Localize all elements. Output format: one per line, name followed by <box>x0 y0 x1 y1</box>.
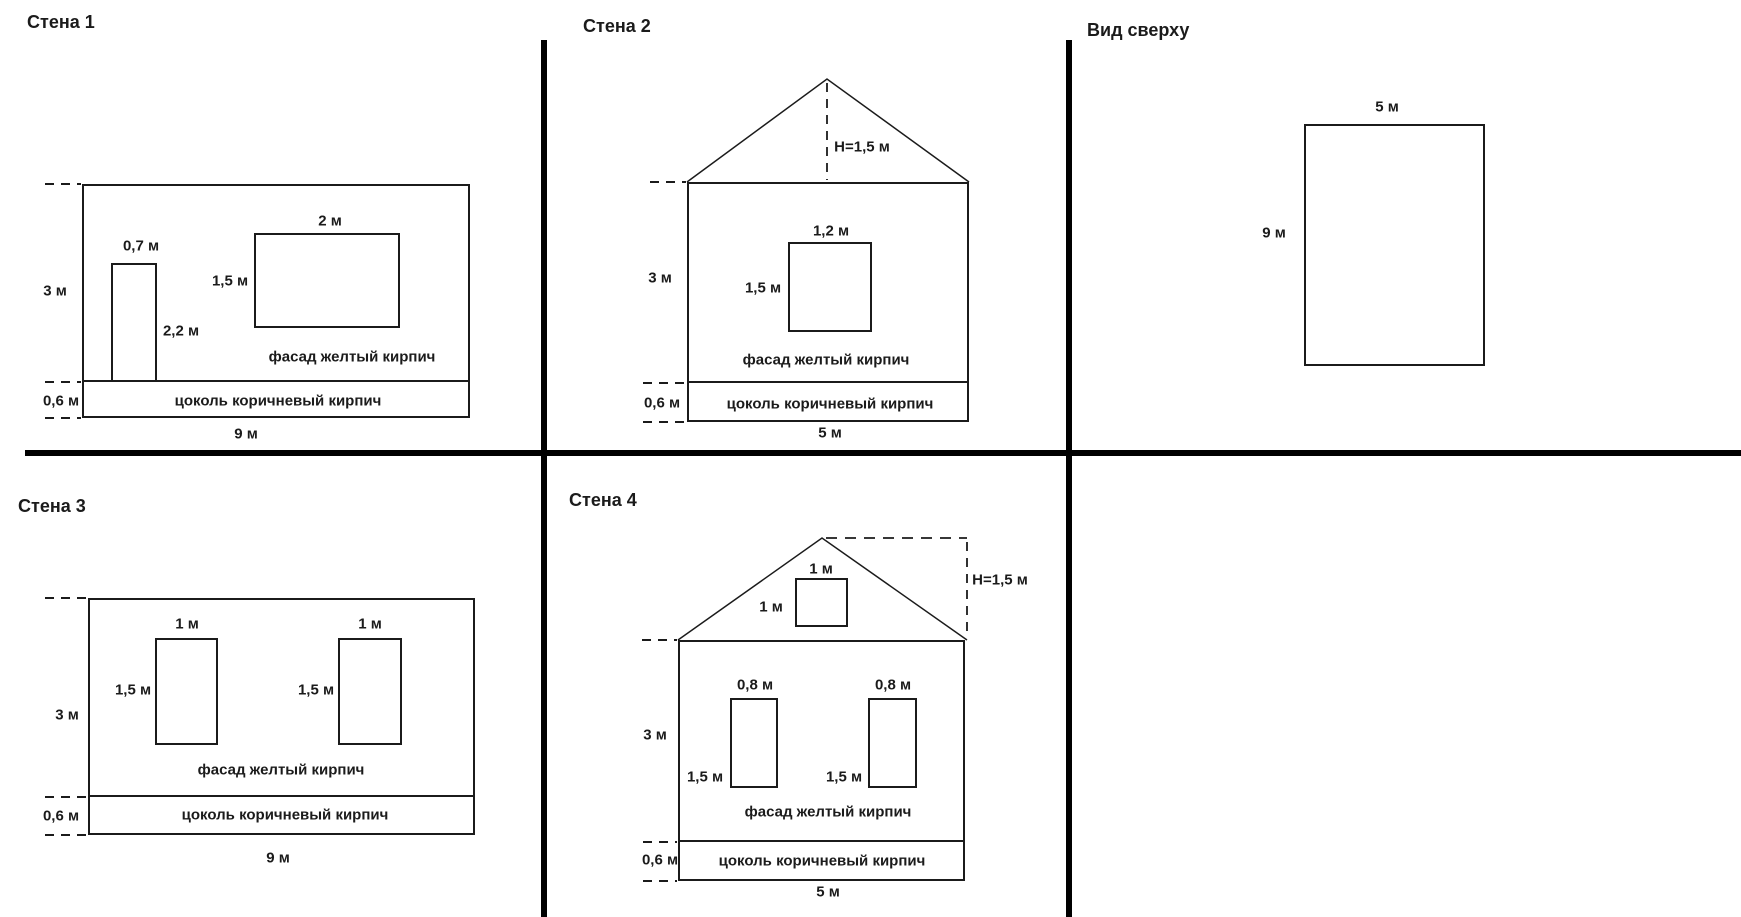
wall1-title: Стена 1 <box>27 12 95 33</box>
wall1-width-label: 9 м <box>234 426 258 443</box>
wall1-window-width-label: 2 м <box>318 213 342 230</box>
wall4-width-label: 5 м <box>816 884 840 901</box>
wall2-window <box>788 242 872 332</box>
wall4-level-dashes <box>642 640 677 881</box>
wall3-height-label: 3 м <box>55 707 79 724</box>
wall1-plinth-height-label: 0,6 м <box>43 393 79 410</box>
wall3-plinth-label: цоколь коричневый кирпич <box>182 807 389 824</box>
top-view-height-label: 9 м <box>1262 225 1286 242</box>
wall3-window2-width-label: 1 м <box>358 616 382 633</box>
wall4-facade-label: фасад желтый кирпич <box>745 804 912 821</box>
wall2-roof-outline <box>687 79 969 182</box>
wall4-gable-window-width-label: 1 м <box>809 561 833 578</box>
wall4-window-1 <box>730 698 778 788</box>
wall4-gable-window <box>795 578 848 627</box>
wall3-title: Стена 3 <box>18 496 86 517</box>
wall1-door <box>111 263 157 382</box>
wall3-window2-height-label: 1,5 м <box>298 682 334 699</box>
wall2-width-label: 5 м <box>818 425 842 442</box>
wall2-roof-height-label: Н=1,5 м <box>834 139 890 156</box>
wall2-plinth-label: цоколь коричневый кирпич <box>727 396 934 413</box>
wall3-plinth-height-label: 0,6 м <box>43 808 79 825</box>
divider-vertical-right <box>1066 40 1072 917</box>
wall1-facade-label: фасад желтый кирпич <box>269 349 436 366</box>
top-view-width-label: 5 м <box>1375 99 1399 116</box>
wall3-window1-height-label: 1,5 м <box>115 682 151 699</box>
wall4-window2-width-label: 0,8 м <box>875 677 911 694</box>
wall2-title: Стена 2 <box>583 16 651 37</box>
wall2-facade-label: фасад желтый кирпич <box>743 352 910 369</box>
wall2-height-label: 3 м <box>648 270 672 287</box>
wall3-window1-width-label: 1 м <box>175 616 199 633</box>
wall1-door-width-label: 0,7 м <box>123 238 159 255</box>
wall2-window-width-label: 1,2 м <box>813 223 849 240</box>
wall2-plinth-height-label: 0,6 м <box>644 395 680 412</box>
wall1-level-dashes <box>45 184 81 418</box>
wall1-window-height-label: 1,5 м <box>212 273 248 290</box>
wall4-height-label: 3 м <box>643 727 667 744</box>
wall4-window2-height-label: 1,5 м <box>826 769 862 786</box>
blueprint-canvas: Стена 1 0,7 м 2,2 м 2 м 1,5 м 3 м фасад … <box>0 0 1741 917</box>
wall4-window-2 <box>868 698 917 788</box>
wall1-height-label: 3 м <box>43 283 67 300</box>
wall3-width-label: 9 м <box>266 850 290 867</box>
top-view-title: Вид сверху <box>1087 20 1189 41</box>
wall4-plinth-height-label: 0,6 м <box>642 852 678 869</box>
wall2-level-dashes <box>643 182 686 422</box>
wall3-window-2 <box>338 638 402 745</box>
top-view-outline <box>1304 124 1485 366</box>
wall4-gable-window-height-label: 1 м <box>759 599 783 616</box>
divider-vertical-left <box>541 40 547 917</box>
wall4-window1-height-label: 1,5 м <box>687 769 723 786</box>
wall3-facade-label: фасад желтый кирпич <box>198 762 365 779</box>
wall3-window-1 <box>155 638 218 745</box>
wall4-window1-width-label: 0,8 м <box>737 677 773 694</box>
wall1-plinth-label: цоколь коричневый кирпич <box>175 393 382 410</box>
wall1-window <box>254 233 400 328</box>
wall4-title: Стена 4 <box>569 490 637 511</box>
wall1-door-height-label: 2,2 м <box>163 323 199 340</box>
wall4-roof-height-label: Н=1,5 м <box>972 572 1028 589</box>
divider-horizontal <box>25 450 1741 456</box>
wall4-plinth-label: цоколь коричневый кирпич <box>719 853 926 870</box>
wall2-window-height-label: 1,5 м <box>745 280 781 297</box>
